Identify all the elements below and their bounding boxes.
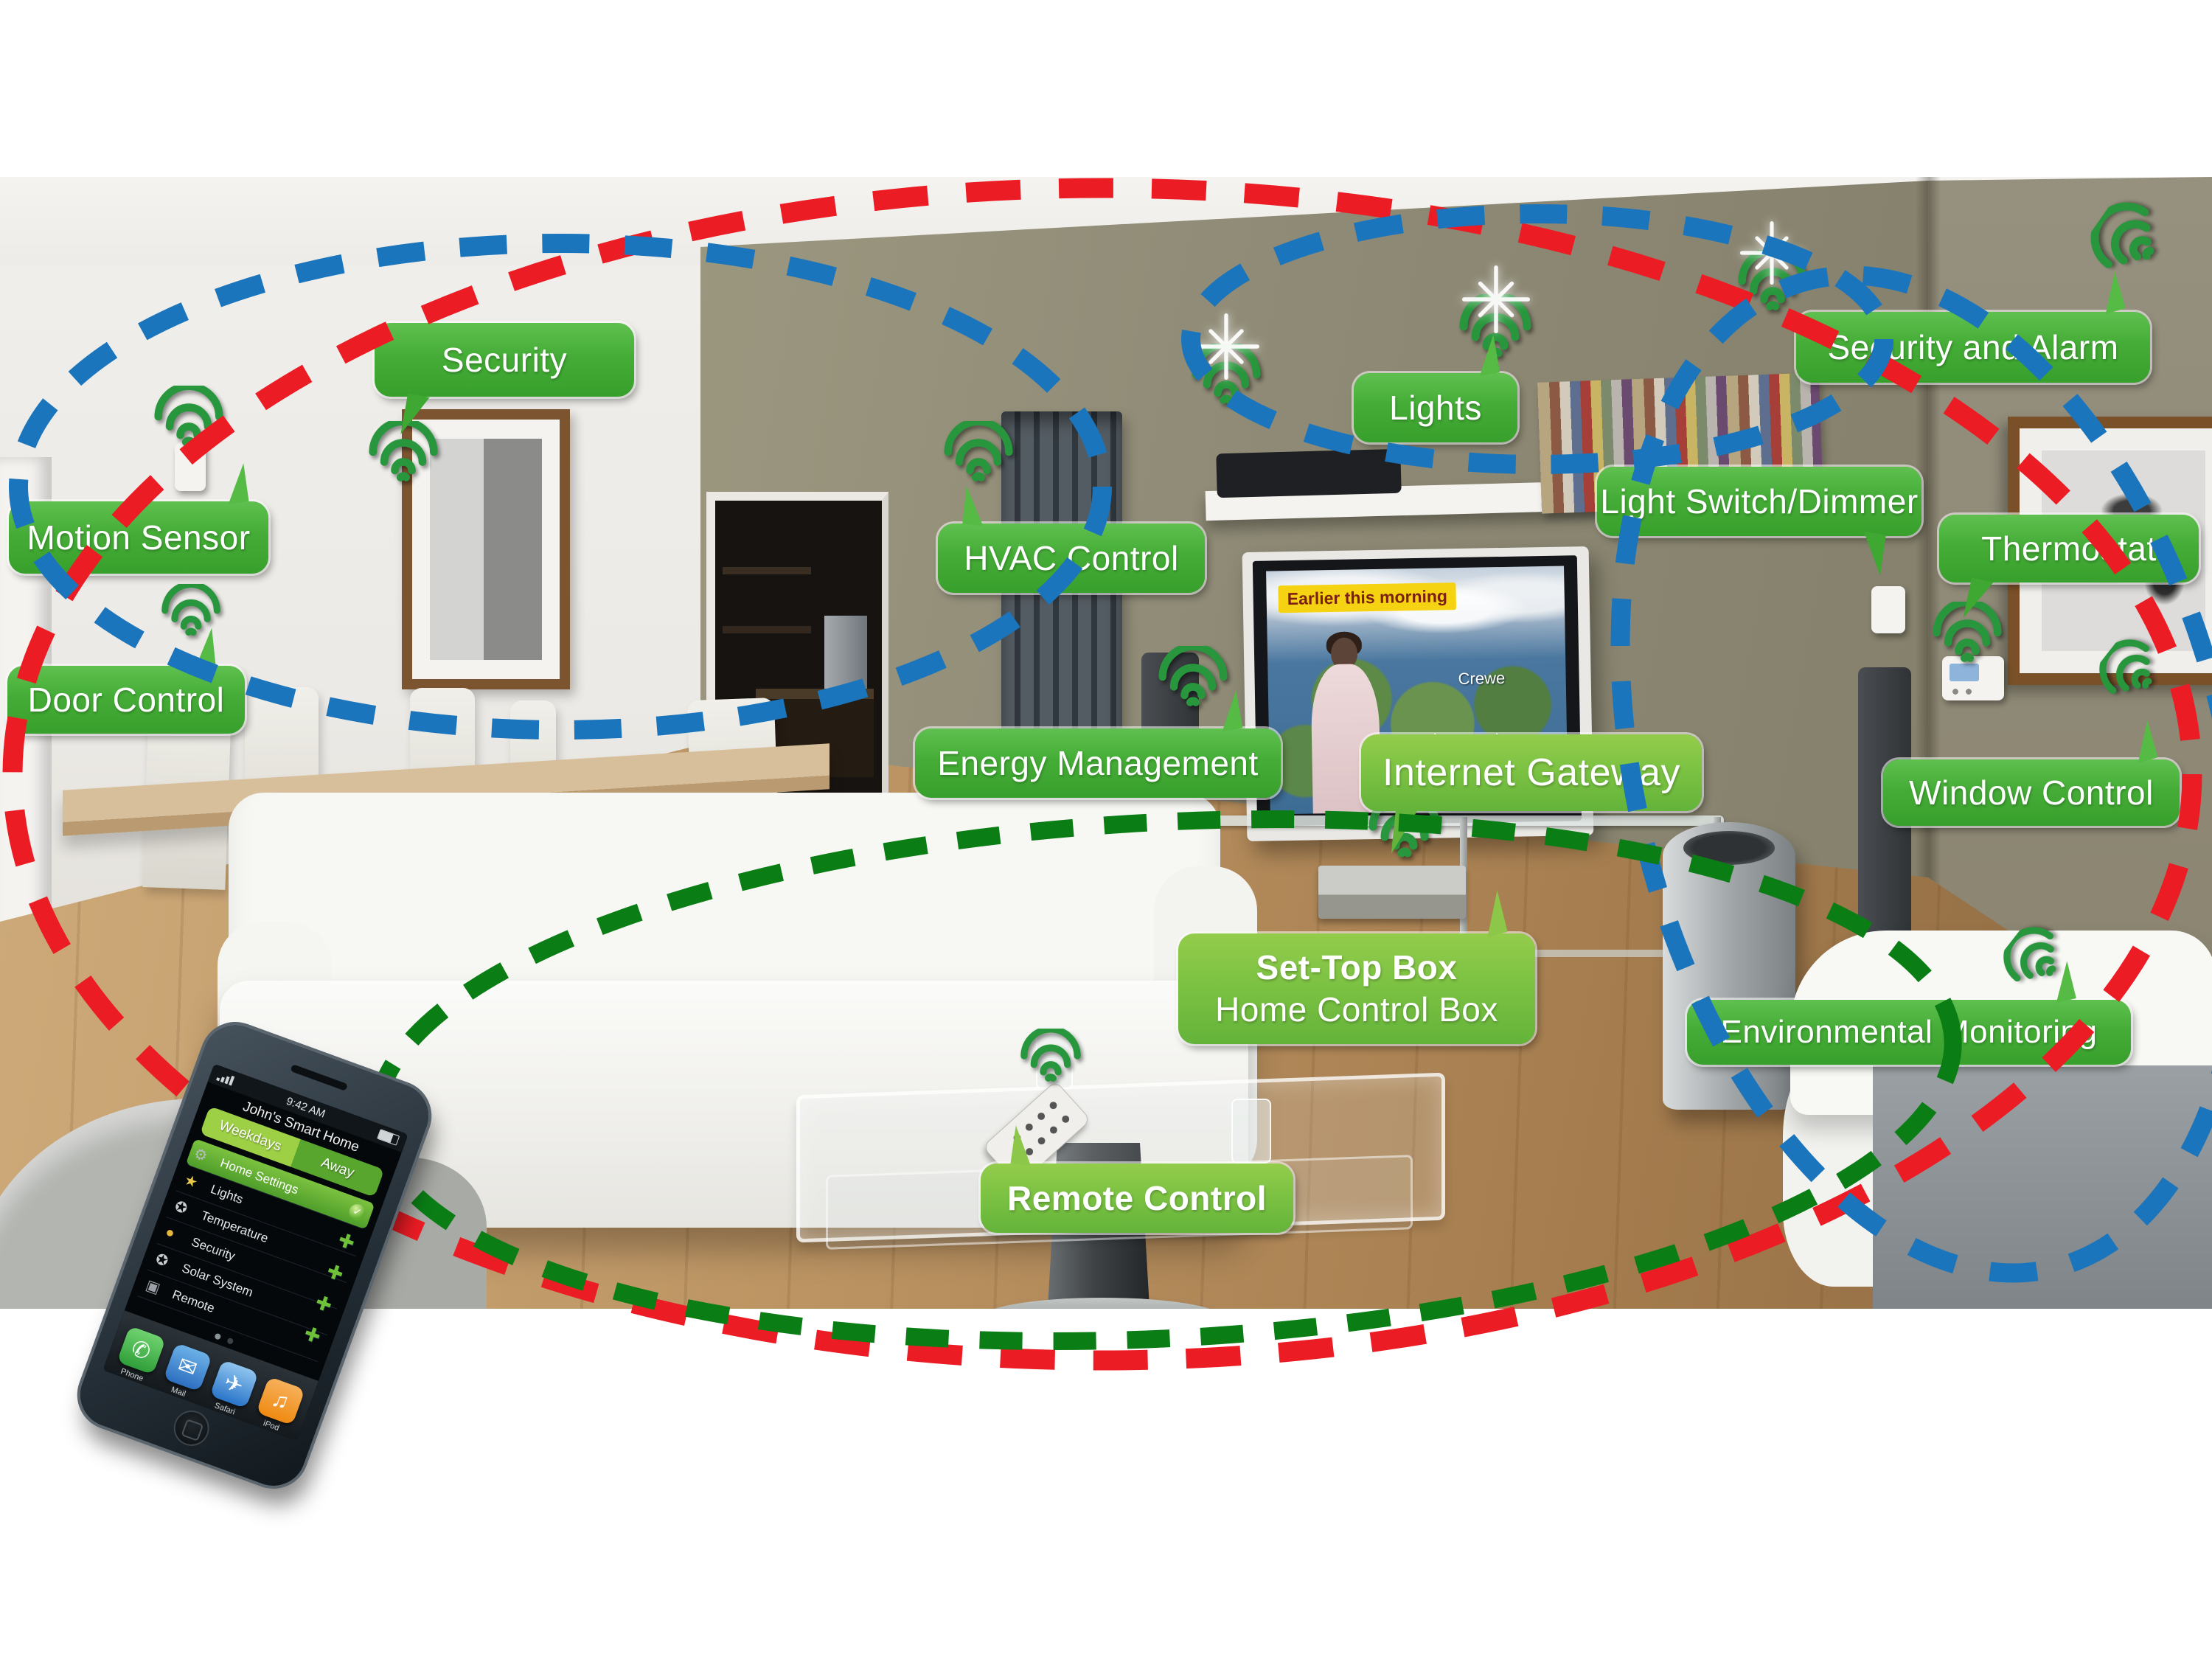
drinking-glass xyxy=(1231,1099,1271,1164)
wifi-icon-remote xyxy=(1020,1029,1082,1083)
sparkle-icon xyxy=(1462,265,1530,333)
label-energy-management: Energy Management xyxy=(915,728,1281,798)
wifi-icon-motion-sensor xyxy=(153,386,224,448)
speaker xyxy=(1216,449,1401,498)
wifi-icon-hvac xyxy=(943,421,1014,483)
remote-icon: ▣ xyxy=(143,1276,162,1298)
ball-icon: ● xyxy=(163,1224,177,1243)
signal-icon xyxy=(216,1071,234,1085)
label-lights: Lights xyxy=(1354,373,1517,442)
smartphone-screen: 9:42 AM John's Smart Home Weekdays Away … xyxy=(102,1064,408,1441)
smartphone: 9:42 AM John's Smart Home Weekdays Away … xyxy=(66,1018,442,1508)
ipod-app-icon[interactable]: ♫iPod xyxy=(256,1377,305,1426)
artwork xyxy=(430,439,542,660)
cylinder-speaker xyxy=(1663,822,1795,1110)
kitchen-shelf xyxy=(723,626,811,633)
label-light-switch-dimmer: Light Switch/Dimmer xyxy=(1597,467,1921,536)
smartphone-body: 9:42 AM John's Smart Home Weekdays Away … xyxy=(71,1016,437,1495)
gear-icon: ⚙ xyxy=(191,1144,209,1166)
label-thermostat: Thermostat xyxy=(1939,515,2199,582)
callout-tail xyxy=(962,486,987,526)
label-security-and-alarm: Security and Alarm xyxy=(1796,312,2150,383)
lock-icon: ✪ xyxy=(172,1197,189,1218)
label-set-top-box: Set-Top BoxHome Control Box xyxy=(1178,933,1535,1044)
sparkle-icon xyxy=(1740,221,1804,285)
lock-icon: ✪ xyxy=(153,1249,170,1270)
wifi-icon-door-control xyxy=(161,584,221,637)
set-top-box-device xyxy=(1318,866,1466,919)
map-city-label: Crewe xyxy=(1458,669,1505,689)
callout-tail xyxy=(191,628,215,669)
tv-caption: Earlier this morning xyxy=(1278,582,1456,613)
top-margin xyxy=(0,0,2212,177)
sparkle-icon xyxy=(1193,313,1259,380)
safari-app-icon[interactable]: ✈Safari xyxy=(209,1360,259,1409)
label-hvac-control: HVAC Control xyxy=(938,524,1205,593)
kitchen-shelf xyxy=(723,567,811,574)
label-remote-control: Remote Control xyxy=(981,1164,1293,1233)
label-security: Security xyxy=(375,323,634,397)
mail-app-icon[interactable]: ✉Mail xyxy=(163,1343,212,1392)
table-base xyxy=(981,1298,1224,1309)
armchair-base xyxy=(1873,1065,2212,1309)
label-door-control: Door Control xyxy=(7,666,245,734)
weather-clouds xyxy=(1266,566,1565,674)
thermostat-lcd xyxy=(1950,664,1979,681)
phone-app-icon[interactable]: ✆Phone xyxy=(116,1326,166,1375)
battery-icon xyxy=(377,1129,400,1146)
home-button[interactable] xyxy=(169,1405,215,1451)
label-environmental-monitoring: Environmental Monitoring xyxy=(1687,1000,2131,1065)
earpiece xyxy=(290,1064,348,1091)
label-motion-sensor: Motion Sensor xyxy=(9,501,268,574)
label-window-control: Window Control xyxy=(1883,759,2180,826)
light-switch-device xyxy=(1871,586,1905,633)
star-icon: ★ xyxy=(181,1170,200,1192)
label-internet-gateway: Internet Gateway xyxy=(1361,734,1702,811)
check-orb-icon: ✓ xyxy=(347,1202,367,1222)
motion-sensor-device xyxy=(175,442,206,491)
